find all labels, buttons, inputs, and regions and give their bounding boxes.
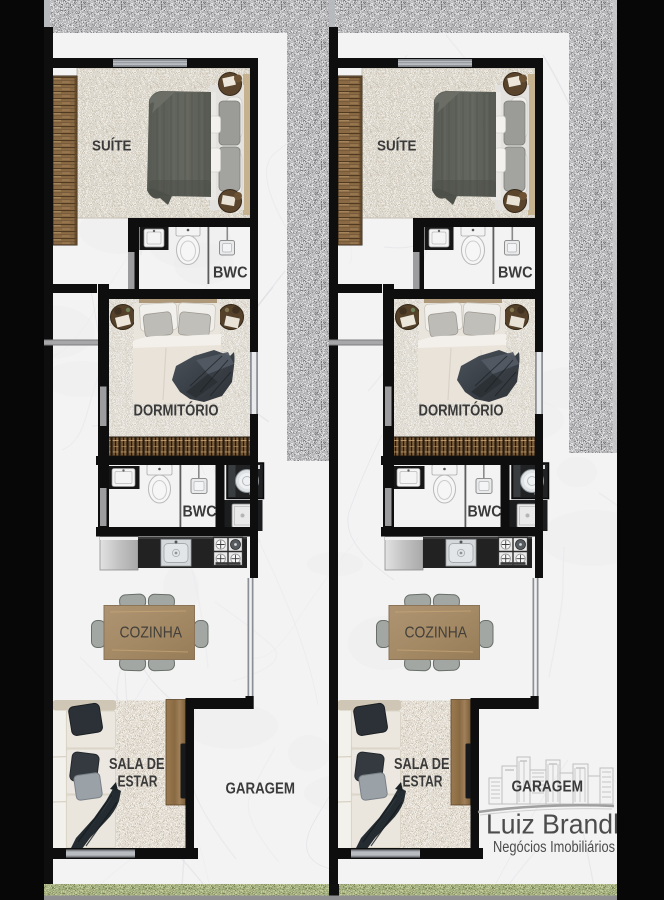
svg-text:DORMITÓRIO: DORMITÓRIO — [419, 402, 504, 420]
svg-text:Negócios Imobiliários: Negócios Imobiliários — [493, 839, 615, 856]
svg-text:GARAGEM: GARAGEM — [512, 779, 584, 796]
svg-text:ESTAR: ESTAR — [118, 774, 158, 791]
svg-text:Luiz Brandl: Luiz Brandl — [486, 809, 619, 840]
svg-text:DORMITÓRIO: DORMITÓRIO — [134, 402, 219, 420]
svg-text:SALA DE: SALA DE — [394, 756, 450, 773]
svg-text:SUÍTE: SUÍTE — [377, 138, 417, 155]
svg-text:SUÍTE: SUÍTE — [92, 138, 132, 155]
svg-text:BWC: BWC — [468, 504, 502, 521]
svg-text:BWC: BWC — [183, 504, 217, 521]
svg-text:ESTAR: ESTAR — [403, 774, 443, 791]
svg-text:SALA DE: SALA DE — [109, 756, 165, 773]
svg-text:BWC: BWC — [213, 265, 248, 282]
svg-text:COZINHA: COZINHA — [120, 625, 183, 642]
svg-text:COZINHA: COZINHA — [405, 625, 468, 642]
svg-text:GARAGEM: GARAGEM — [226, 781, 296, 798]
svg-text:BWC: BWC — [498, 265, 533, 282]
